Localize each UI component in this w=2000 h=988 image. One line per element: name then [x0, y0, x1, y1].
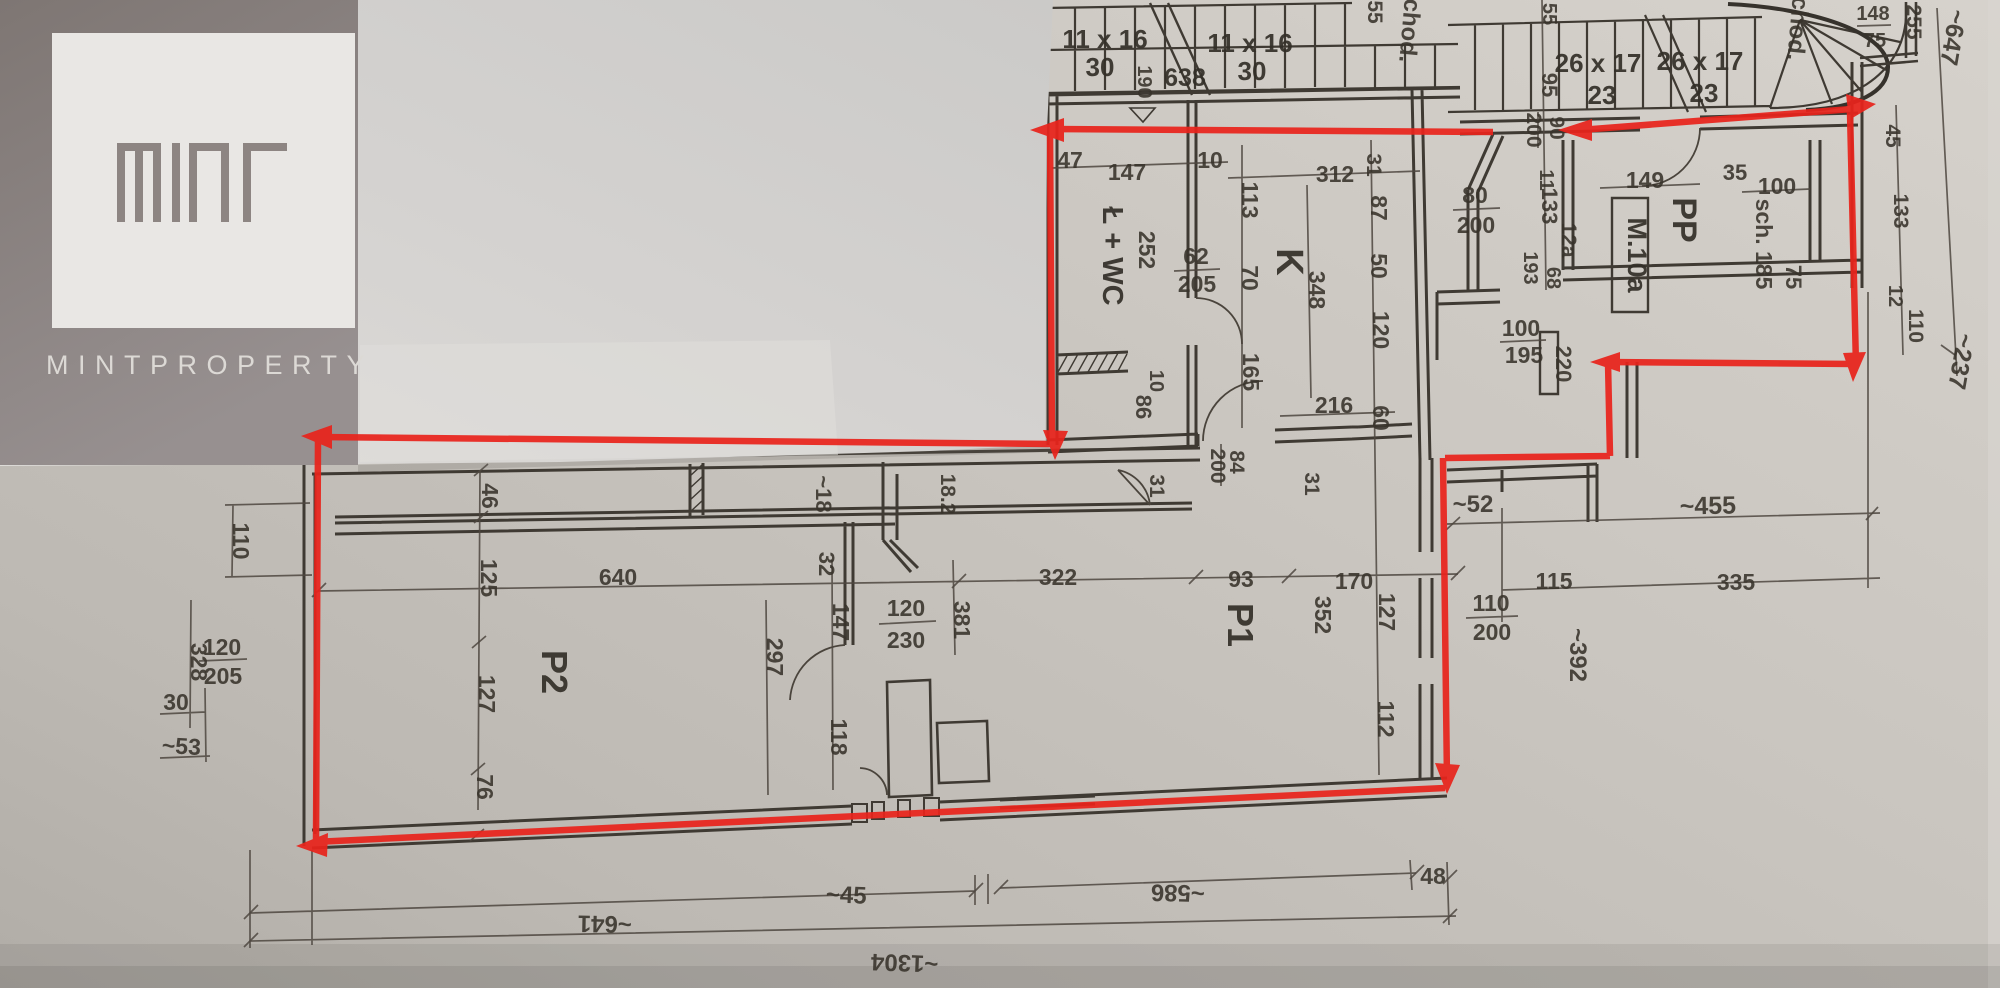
stair-tread: 23: [1588, 80, 1617, 110]
dim: ~455: [1679, 492, 1736, 521]
dim: 133: [1537, 188, 1562, 225]
dim: 110: [228, 522, 254, 559]
dim: 100: [1502, 315, 1540, 341]
dim: 335: [1717, 569, 1756, 595]
dim: 381: [949, 601, 975, 640]
dim: 220: [1551, 346, 1576, 383]
dim: 205: [1178, 271, 1217, 297]
dim: 113: [1237, 181, 1263, 218]
stair-label: 26 x 17: [1555, 48, 1642, 78]
dim: 322: [1039, 564, 1077, 590]
dim: 18.2: [936, 474, 959, 515]
dim: 31: [1145, 474, 1168, 498]
dim: 120: [887, 595, 925, 621]
dim: 100: [1758, 173, 1796, 199]
stair-tread: 30: [1086, 52, 1115, 82]
paper-bottom-shade2: [0, 966, 2000, 988]
dim: 48: [1420, 863, 1446, 889]
dim: 110: [1472, 590, 1509, 616]
dim: ~641: [578, 910, 633, 938]
dim: 93: [1228, 566, 1254, 592]
floor-plan-photo: 11 x 16 30 11 x 16 30 638 190 26 x 17 23…: [0, 0, 2000, 988]
stair-label: 11 x 16: [1062, 24, 1147, 54]
dim: ~53: [161, 732, 201, 760]
dim: 75: [1781, 265, 1806, 289]
dim: 12a: [1557, 222, 1580, 257]
dim: 312: [1316, 161, 1354, 187]
dim: 148: [1856, 3, 1889, 25]
dim: 75: [1864, 30, 1886, 52]
dim: 216: [1315, 392, 1353, 418]
dim: 170: [1335, 568, 1373, 594]
dim: 55: [1538, 3, 1560, 25]
stair-direction: chod.: [1781, 0, 1813, 62]
dim: 200: [1457, 212, 1495, 238]
dim: 120: [1368, 311, 1394, 349]
level-value: 638: [1164, 64, 1206, 92]
dim: 195: [1505, 342, 1544, 368]
room-label-k: K: [1268, 248, 1310, 276]
dim: 252: [1134, 231, 1160, 269]
dim: ~18: [811, 475, 836, 512]
dim: 147: [1108, 159, 1146, 185]
dim: 47: [1057, 147, 1083, 173]
dim: 95: [1537, 73, 1562, 97]
dim: 115: [1535, 568, 1572, 594]
dim: 86: [1131, 395, 1156, 419]
dim: 255: [1902, 4, 1925, 39]
dim: 133: [1889, 193, 1912, 228]
room-label-m10a: M.10a: [1622, 217, 1652, 293]
stair-tread: 23: [1690, 78, 1719, 108]
dim: 50: [1366, 253, 1392, 279]
dim: 328: [186, 643, 212, 682]
room-label-pp: PP: [1665, 197, 1703, 242]
dim: 352: [1310, 596, 1336, 634]
dim: 297: [762, 638, 788, 676]
dim: 62: [1183, 243, 1209, 269]
dim: 112: [1373, 700, 1399, 737]
dim: 230: [887, 627, 925, 653]
dim: 68: [1542, 267, 1564, 289]
stair-direction: chod.: [1393, 0, 1425, 64]
dim: 110: [1904, 309, 1927, 343]
floor-plan-drawing: 11 x 16 30 11 x 16 30 638 190 26 x 17 23…: [0, 0, 2000, 988]
room-label-p2: P2: [534, 650, 575, 694]
dim: 118: [826, 718, 852, 755]
dim: 31: [1300, 472, 1323, 496]
dim: 200: [1473, 619, 1511, 645]
stair-label: 11 x 16: [1207, 28, 1292, 58]
dim: 45: [1881, 124, 1904, 148]
dim: 87: [1366, 195, 1392, 221]
dim: 149: [1626, 167, 1664, 193]
dim: 193: [1519, 251, 1541, 284]
dim: ~45: [825, 881, 867, 909]
paper-edge: [1988, 0, 2000, 988]
dim: 127: [474, 675, 500, 713]
dim: ~392: [1564, 628, 1591, 682]
dim: 10: [1145, 370, 1167, 392]
dim: 165: [1238, 353, 1264, 392]
dim: 60: [1368, 405, 1394, 431]
dim: 32: [814, 552, 839, 576]
dim: 125: [476, 559, 502, 598]
dim: 55: [1363, 0, 1386, 24]
stair-tread: 30: [1238, 56, 1267, 86]
dim: 30: [163, 689, 189, 715]
dim: 200: [1522, 112, 1545, 147]
brand-wordmark: MINTPROPERTY: [46, 350, 374, 380]
dim: 10: [1197, 147, 1223, 173]
dim: 200: [1206, 448, 1229, 483]
dim: 348: [1304, 271, 1330, 310]
brand-block: MINTPROPERTY: [0, 0, 374, 465]
dim: 70: [1237, 265, 1263, 291]
dim: 147: [828, 603, 854, 641]
dim: 46: [477, 483, 503, 509]
dim: 190: [1133, 65, 1155, 98]
dim: 31: [1362, 153, 1385, 177]
dim: 76: [472, 774, 498, 800]
logo-square: [52, 33, 355, 328]
dim: 35: [1723, 160, 1747, 185]
dim: 12: [1884, 285, 1906, 307]
dim: 640: [599, 564, 637, 590]
stair-label: 26 x 17: [1657, 46, 1744, 76]
room-label-sch: sch. 185: [1751, 199, 1777, 290]
dim: 80: [1462, 182, 1488, 208]
dim: ~1304: [870, 948, 939, 977]
dim: 127: [1374, 593, 1400, 631]
dim: ~586: [1151, 879, 1206, 907]
dim: ~52: [1453, 491, 1494, 518]
room-label-p1: P1: [1220, 603, 1261, 647]
room-label-lwc: Ł + WC: [1096, 206, 1128, 305]
